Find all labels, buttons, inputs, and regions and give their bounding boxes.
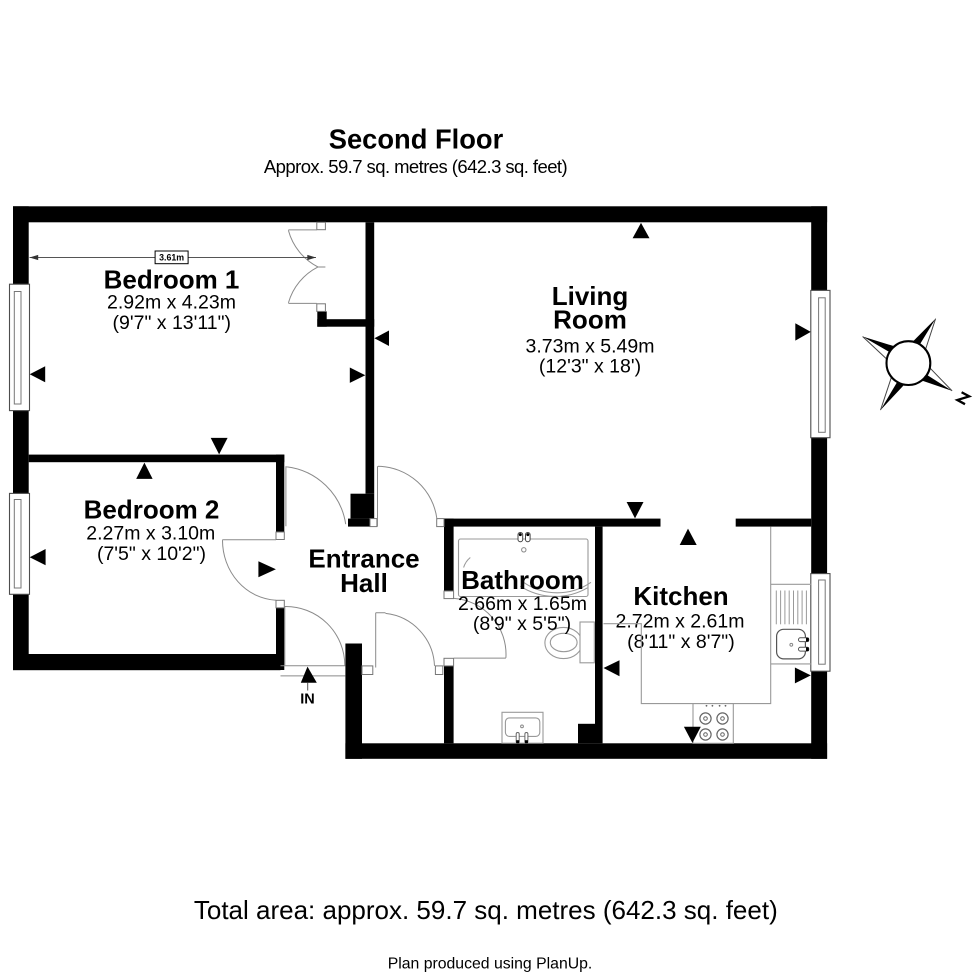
svg-text:Hall: Hall	[340, 568, 388, 598]
svg-text:(12'3" x 18'): (12'3" x 18')	[539, 356, 641, 378]
svg-text:Bathroom: Bathroom	[461, 565, 584, 595]
svg-text:(8'9" x 5'5"): (8'9" x 5'5")	[473, 613, 571, 635]
svg-text:3.73m x 5.49m: 3.73m x 5.49m	[526, 335, 655, 357]
svg-text:(9'7" x 13'11"): (9'7" x 13'11")	[113, 312, 232, 334]
svg-text:3.61m: 3.61m	[159, 252, 184, 262]
svg-text:Bedroom 1: Bedroom 1	[104, 265, 240, 295]
svg-text:IN: IN	[300, 691, 315, 707]
svg-text:Approx. 59.7 sq. metres (642.3: Approx. 59.7 sq. metres (642.3 sq. feet)	[264, 156, 568, 177]
svg-text:(7'5" x 10'2"): (7'5" x 10'2")	[97, 543, 206, 565]
svg-text:Total area: approx. 59.7 sq. m: Total area: approx. 59.7 sq. metres (642…	[194, 895, 778, 925]
svg-text:Second Floor: Second Floor	[329, 124, 504, 155]
svg-text:Kitchen: Kitchen	[633, 581, 728, 611]
svg-text:Bedroom 2: Bedroom 2	[84, 495, 220, 525]
svg-text:Room: Room	[553, 304, 627, 334]
svg-text:2.27m x 3.10m: 2.27m x 3.10m	[86, 522, 215, 544]
svg-text:2.92m x 4.23m: 2.92m x 4.23m	[107, 292, 236, 314]
svg-text:2.72m x 2.61m: 2.72m x 2.61m	[616, 611, 745, 633]
svg-text:(8'11" x 8'7"): (8'11" x 8'7")	[627, 631, 735, 653]
svg-text:Plan produced using PlanUp.: Plan produced using PlanUp.	[388, 956, 593, 973]
